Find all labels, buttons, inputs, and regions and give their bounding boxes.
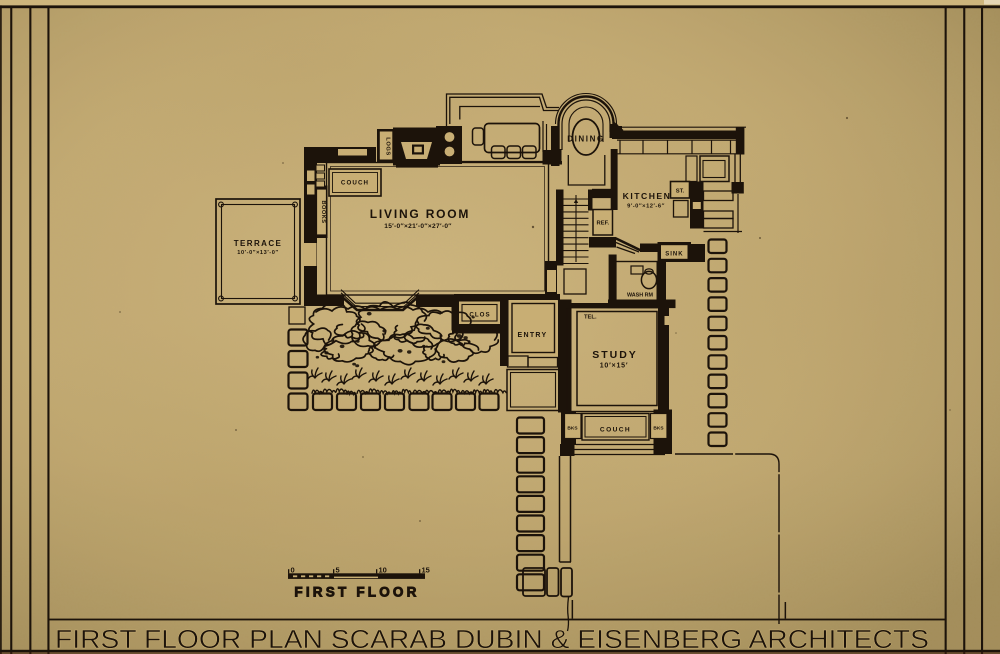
- svg-text:SINK: SINK: [665, 252, 683, 258]
- svg-text:BKS: BKS: [653, 426, 664, 432]
- svg-text:BOOKS: BOOKS: [320, 200, 326, 223]
- svg-text:5: 5: [336, 566, 340, 575]
- svg-text:COUCH: COUCH: [600, 427, 631, 434]
- svg-text:0: 0: [291, 566, 295, 575]
- svg-text:9′-0″×12′-6″: 9′-0″×12′-6″: [627, 204, 665, 210]
- svg-text:COUCH: COUCH: [341, 180, 369, 187]
- svg-text:15: 15: [422, 566, 430, 575]
- svg-text:10′×15′: 10′×15′: [600, 363, 629, 370]
- svg-text:REF.: REF.: [597, 221, 610, 227]
- svg-text:15′-0″×21′-0″×27′-0″: 15′-0″×21′-0″×27′-0″: [384, 223, 452, 230]
- svg-text:TEL.: TEL.: [584, 315, 597, 321]
- svg-text:ENTRY: ENTRY: [518, 332, 548, 339]
- svg-text:10: 10: [379, 566, 387, 575]
- svg-text:WASH RM: WASH RM: [627, 293, 654, 299]
- svg-text:BKS: BKS: [567, 426, 578, 432]
- svg-text:TERRACE: TERRACE: [234, 239, 282, 248]
- svg-text:LIVING ROOM: LIVING ROOM: [370, 207, 470, 221]
- svg-text:ST.: ST.: [676, 189, 685, 195]
- svg-text:10′-0″×13′-0″: 10′-0″×13′-0″: [237, 250, 279, 256]
- svg-text:FIRST FLOOR: FIRST FLOOR: [294, 585, 419, 600]
- svg-text:KITCHEN: KITCHEN: [623, 191, 672, 201]
- svg-text:STUDY: STUDY: [592, 349, 638, 361]
- svg-text:FIRST FLOOR PLAN SCARAB DUBIN: FIRST FLOOR PLAN SCARAB DUBIN & EISENBER…: [55, 626, 929, 654]
- svg-text:DINING: DINING: [567, 135, 605, 144]
- svg-text:LOGS: LOGS: [385, 137, 391, 155]
